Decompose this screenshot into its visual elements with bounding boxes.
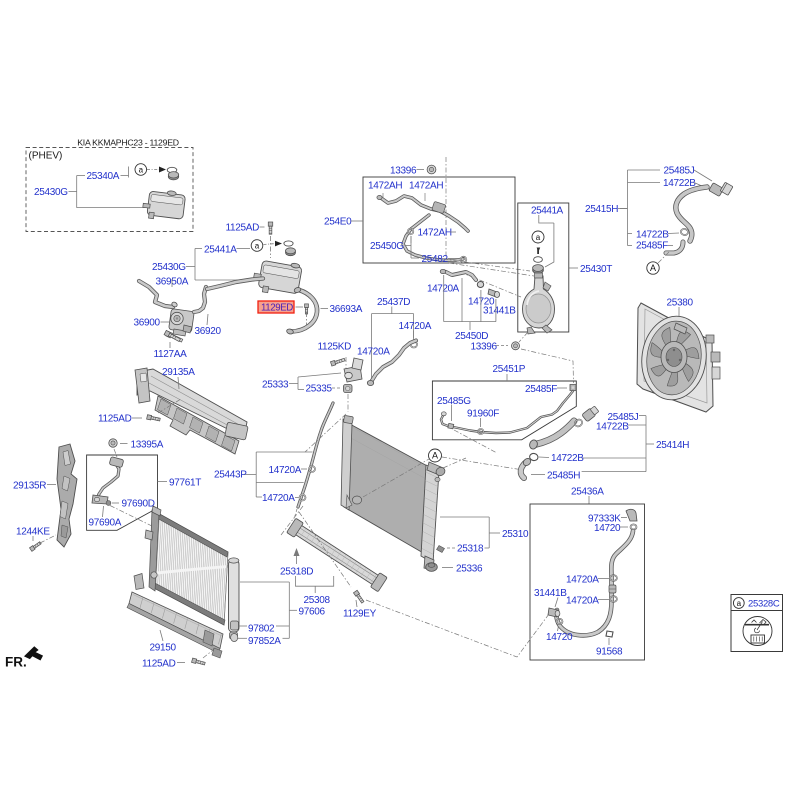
svg-text:25415H: 25415H — [585, 204, 618, 215]
svg-text:14722B: 14722B — [636, 230, 669, 241]
svg-text:36920: 36920 — [195, 326, 222, 337]
svg-text:29135R: 29135R — [13, 481, 46, 492]
svg-text:97802: 97802 — [248, 624, 275, 635]
svg-text:1129EY: 1129EY — [343, 609, 377, 620]
svg-text:14722B: 14722B — [551, 453, 584, 464]
svg-text:14720: 14720 — [594, 523, 621, 534]
svg-text:25328C: 25328C — [748, 599, 780, 610]
svg-text:25310: 25310 — [502, 529, 529, 540]
svg-text:25436A: 25436A — [571, 487, 604, 498]
svg-text:31441B: 31441B — [483, 306, 516, 317]
svg-text:25340A: 25340A — [87, 171, 120, 182]
svg-text:14720A: 14720A — [566, 575, 599, 586]
svg-text:1125AD: 1125AD — [142, 659, 176, 670]
svg-text:254E0: 254E0 — [324, 217, 352, 228]
svg-text:36693A: 36693A — [330, 304, 363, 315]
svg-text:14720A: 14720A — [262, 493, 295, 504]
svg-text:1472AH: 1472AH — [368, 181, 402, 192]
svg-text:29135A: 29135A — [162, 367, 195, 378]
svg-text:36900: 36900 — [134, 318, 161, 329]
svg-text:1129ED: 1129ED — [261, 303, 293, 314]
svg-text:25450D: 25450D — [455, 331, 488, 342]
svg-text:25333: 25333 — [262, 380, 289, 391]
svg-text:25318: 25318 — [457, 544, 484, 555]
svg-text:97690D: 97690D — [122, 499, 155, 510]
svg-text:13395A: 13395A — [131, 440, 164, 451]
svg-text:a: a — [536, 233, 541, 242]
svg-text:1472AH: 1472AH — [409, 181, 443, 192]
svg-text:a: a — [255, 241, 260, 250]
svg-text:14720A: 14720A — [566, 596, 599, 607]
svg-text:14720A: 14720A — [399, 321, 432, 332]
svg-text:97761T: 97761T — [169, 478, 201, 489]
svg-text:13396: 13396 — [390, 166, 417, 177]
svg-text:25437D: 25437D — [377, 297, 410, 308]
svg-text:25441A: 25441A — [531, 206, 564, 217]
svg-text:1125KD: 1125KD — [318, 342, 352, 353]
svg-text:14722B: 14722B — [596, 422, 629, 433]
svg-text:25380: 25380 — [667, 298, 694, 309]
svg-text:(PHEV): (PHEV) — [29, 151, 63, 162]
svg-text:25450G: 25450G — [370, 241, 404, 252]
svg-text:25441A: 25441A — [204, 245, 237, 256]
svg-text:1472AH: 1472AH — [418, 228, 452, 239]
svg-text:13396: 13396 — [471, 342, 498, 353]
svg-text:25336: 25336 — [456, 564, 483, 575]
svg-text:91568: 91568 — [596, 647, 623, 658]
svg-text:31441B: 31441B — [534, 588, 567, 599]
svg-text:25308: 25308 — [304, 595, 331, 606]
svg-text:97852A: 97852A — [248, 636, 281, 647]
svg-text:a: a — [139, 165, 144, 174]
svg-text:25443P: 25443P — [214, 470, 247, 481]
svg-text:14720A: 14720A — [269, 465, 302, 476]
svg-text:FR.: FR. — [5, 655, 27, 670]
svg-text:1125AD: 1125AD — [226, 223, 260, 234]
svg-text:14722B: 14722B — [663, 178, 696, 189]
svg-text:97606: 97606 — [299, 607, 326, 618]
svg-text:1244KE: 1244KE — [16, 527, 50, 538]
svg-text:KIA KKMAPHC23 - 1129ED: KIA KKMAPHC23 - 1129ED — [77, 137, 179, 147]
svg-text:25485J: 25485J — [664, 166, 695, 177]
svg-text:25430G: 25430G — [152, 262, 186, 273]
svg-text:97690A: 97690A — [89, 518, 122, 529]
svg-text:A: A — [432, 451, 438, 461]
svg-text:91960F: 91960F — [467, 409, 499, 420]
svg-text:25485G: 25485G — [437, 396, 471, 407]
svg-text:25430T: 25430T — [580, 264, 612, 275]
svg-text:25485F: 25485F — [525, 384, 557, 395]
svg-text:14720: 14720 — [546, 632, 573, 643]
svg-text:25318D: 25318D — [280, 567, 313, 578]
svg-text:25485F: 25485F — [636, 241, 668, 252]
svg-text:1125AD: 1125AD — [98, 414, 132, 425]
svg-text:a: a — [737, 599, 742, 608]
svg-text:1127AA: 1127AA — [154, 349, 188, 360]
svg-text:29150: 29150 — [150, 643, 177, 654]
svg-text:A: A — [650, 263, 656, 273]
svg-text:14720A: 14720A — [427, 284, 460, 295]
svg-text:25335: 25335 — [306, 384, 333, 395]
svg-text:25414H: 25414H — [656, 440, 689, 451]
svg-text:25485H: 25485H — [547, 471, 580, 482]
svg-text:14720A: 14720A — [357, 347, 390, 358]
svg-text:25451P: 25451P — [493, 364, 526, 375]
svg-text:25430G: 25430G — [34, 187, 68, 198]
